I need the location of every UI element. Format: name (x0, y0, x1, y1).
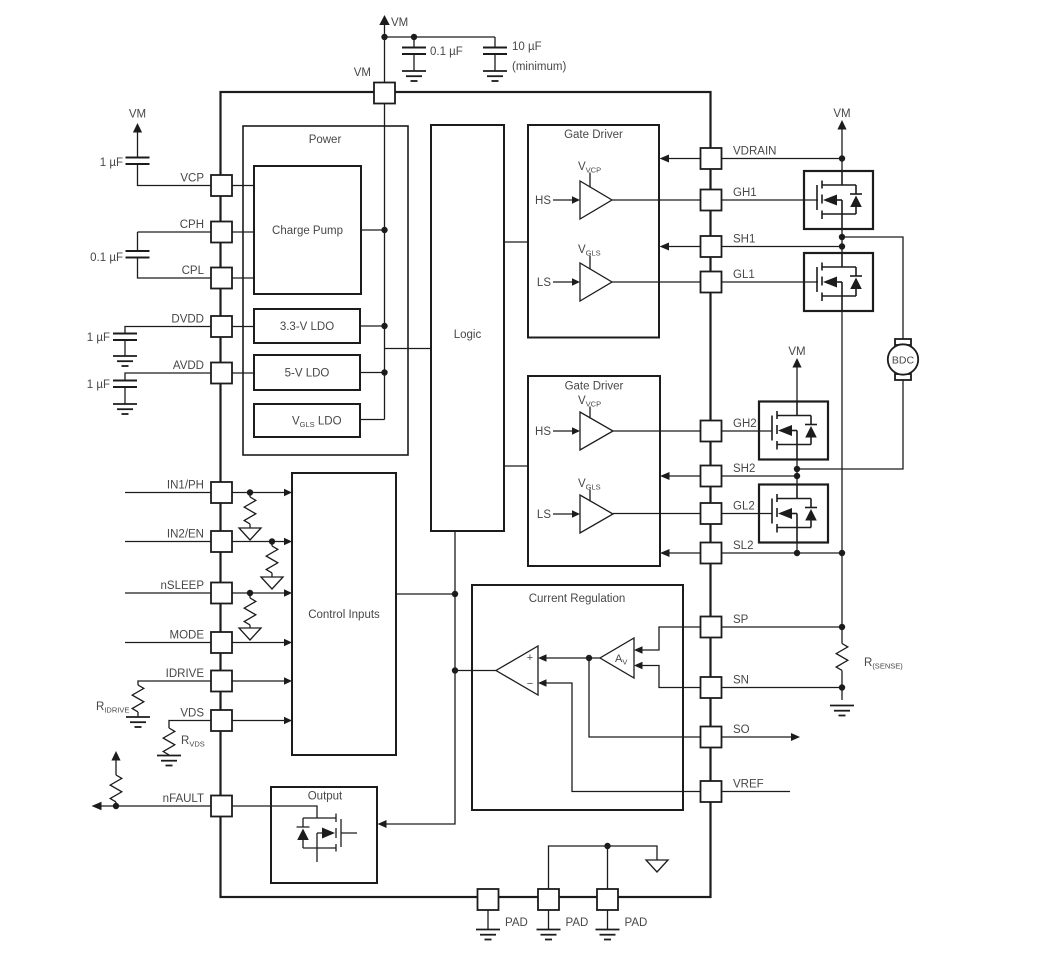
svg-text:HS: HS (535, 426, 551, 438)
svg-text:SH2: SH2 (733, 463, 755, 475)
svg-text:1 µF: 1 µF (87, 379, 110, 391)
svg-text:GL2: GL2 (733, 501, 755, 513)
svg-text:Output: Output (308, 791, 343, 803)
svg-text:BDC: BDC (892, 355, 915, 367)
svg-text:SO: SO (733, 724, 750, 736)
svg-text:VGLS LDO: VGLS LDO (292, 416, 342, 430)
svg-text:VM: VM (354, 67, 371, 79)
svg-text:IN2/EN: IN2/EN (167, 529, 204, 541)
svg-text:GH2: GH2 (733, 418, 757, 430)
svg-text:0.1 µF: 0.1 µF (90, 252, 123, 264)
svg-text:VM: VM (833, 108, 850, 120)
svg-text:VCP: VCP (180, 173, 204, 185)
svg-text:Logic: Logic (454, 329, 482, 341)
svg-text:SL2: SL2 (733, 540, 753, 552)
svg-text:VM: VM (788, 346, 805, 358)
svg-text:Gate Driver: Gate Driver (564, 129, 623, 141)
svg-text:MODE: MODE (170, 630, 205, 642)
svg-text:SP: SP (733, 614, 749, 626)
svg-text:VDRAIN: VDRAIN (733, 146, 776, 158)
svg-text:VREF: VREF (733, 779, 764, 791)
svg-text:3.3-V LDO: 3.3-V LDO (280, 321, 334, 333)
svg-text:5-V LDO: 5-V LDO (285, 368, 330, 380)
svg-text:PAD: PAD (505, 917, 528, 929)
svg-text:SH1: SH1 (733, 234, 755, 246)
svg-text:VDS: VDS (180, 708, 204, 720)
svg-text:nFAULT: nFAULT (163, 793, 204, 805)
svg-text:−: − (527, 678, 533, 690)
svg-text:DVDD: DVDD (171, 314, 204, 326)
svg-text:(minimum): (minimum) (512, 61, 566, 73)
svg-text:10 µF: 10 µF (512, 41, 542, 53)
svg-text:nSLEEP: nSLEEP (161, 580, 205, 592)
svg-text:1 µF: 1 µF (87, 332, 110, 344)
svg-text:Control Inputs: Control Inputs (308, 609, 380, 621)
svg-text:0.1 µF: 0.1 µF (430, 46, 463, 58)
svg-text:+: + (527, 652, 533, 664)
svg-text:PAD: PAD (566, 917, 589, 929)
svg-text:Current Regulation: Current Regulation (529, 593, 626, 605)
svg-text:IN1/PH: IN1/PH (167, 480, 204, 492)
svg-text:CPH: CPH (180, 219, 204, 231)
svg-text:Charge Pump: Charge Pump (272, 225, 343, 237)
svg-text:SN: SN (733, 675, 749, 687)
svg-text:1 µF: 1 µF (100, 157, 123, 169)
svg-text:IDRIVE: IDRIVE (166, 668, 205, 680)
svg-text:PAD: PAD (625, 917, 648, 929)
svg-text:Gate Driver: Gate Driver (565, 381, 624, 393)
svg-text:VM: VM (129, 109, 146, 121)
svg-text:GL1: GL1 (733, 269, 755, 281)
svg-text:Power: Power (309, 134, 342, 146)
svg-text:CPL: CPL (182, 265, 205, 277)
svg-text:AVDD: AVDD (173, 360, 204, 372)
svg-text:VM: VM (391, 17, 408, 29)
svg-text:LS: LS (537, 509, 551, 521)
svg-text:HS: HS (535, 195, 551, 207)
svg-text:LS: LS (537, 277, 551, 289)
svg-text:GH1: GH1 (733, 187, 757, 199)
